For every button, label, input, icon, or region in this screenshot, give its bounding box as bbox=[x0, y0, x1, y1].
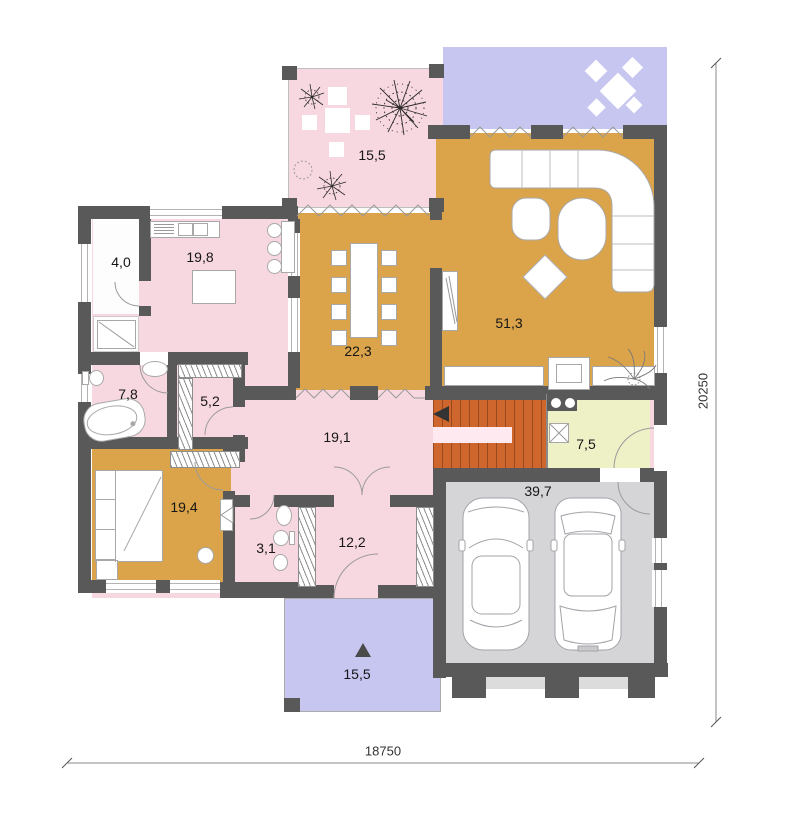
room-terrace-bottom bbox=[284, 598, 441, 712]
wall bbox=[390, 495, 436, 507]
room-label-garage: 39,7 bbox=[524, 483, 551, 499]
wall bbox=[350, 386, 378, 400]
wall bbox=[78, 580, 106, 593]
window bbox=[652, 570, 668, 607]
room-label-wc: 3,1 bbox=[256, 540, 275, 556]
wall bbox=[433, 478, 446, 678]
room-label-dining: 22,3 bbox=[344, 343, 371, 359]
toilet-tank bbox=[289, 531, 295, 545]
wall-post bbox=[282, 198, 297, 212]
wall bbox=[430, 200, 442, 220]
dining-chair bbox=[381, 277, 397, 293]
interior-window bbox=[288, 298, 300, 352]
stairs-landing bbox=[433, 427, 512, 443]
toilet-bowl bbox=[89, 370, 104, 386]
bar-stool bbox=[267, 223, 282, 238]
stool bbox=[197, 547, 214, 564]
washer-knob bbox=[565, 398, 575, 408]
room-label-closet: 5,2 bbox=[200, 393, 219, 409]
nightstand bbox=[96, 560, 118, 580]
wall bbox=[433, 663, 668, 677]
room-label-terrace: 15,5 bbox=[343, 666, 370, 682]
skylight-square bbox=[302, 115, 317, 130]
wall bbox=[531, 125, 563, 139]
room-label-kitchen: 19,8 bbox=[186, 249, 213, 265]
room-label-utility: 7,5 bbox=[576, 436, 595, 452]
wall bbox=[240, 386, 296, 400]
wall bbox=[156, 580, 170, 593]
closet-shelves bbox=[178, 378, 193, 450]
room-garage bbox=[445, 480, 655, 665]
window bbox=[652, 538, 668, 563]
skylight-square bbox=[325, 108, 350, 133]
wardrobe bbox=[170, 451, 240, 468]
wall bbox=[167, 365, 177, 438]
sideboard bbox=[444, 366, 544, 386]
room-label-living: 51,3 bbox=[495, 315, 522, 331]
wall bbox=[288, 276, 300, 298]
dining-chair bbox=[381, 304, 397, 320]
wall bbox=[433, 468, 600, 482]
closet-shelves bbox=[178, 364, 242, 378]
garage-pillar bbox=[628, 677, 655, 698]
shower-tray bbox=[97, 320, 136, 349]
wall bbox=[78, 437, 248, 449]
room-label-room: 12,2 bbox=[338, 534, 365, 550]
dining-chair bbox=[331, 304, 347, 320]
bidet bbox=[273, 554, 288, 571]
room-label-bedroom: 19,4 bbox=[170, 499, 197, 515]
window bbox=[654, 327, 667, 373]
wall bbox=[430, 268, 442, 388]
dining-chair bbox=[381, 330, 397, 346]
room-label-winter-garden: 15,5 bbox=[358, 147, 385, 163]
skylight-square bbox=[329, 142, 344, 157]
wall bbox=[288, 352, 300, 388]
wall bbox=[428, 125, 470, 139]
wall bbox=[654, 125, 667, 327]
door-opening bbox=[600, 468, 640, 482]
bar-stool bbox=[267, 241, 282, 256]
kitchen-island bbox=[192, 270, 236, 304]
wall bbox=[78, 402, 91, 593]
dimension-right: 20250 bbox=[696, 373, 711, 409]
dining-chair bbox=[331, 250, 347, 266]
bathroom-sink bbox=[142, 361, 168, 377]
room-label-bathroom: 7,8 bbox=[118, 386, 137, 402]
water-heater bbox=[549, 423, 569, 443]
wall bbox=[220, 585, 334, 598]
kitchen-bar bbox=[281, 221, 295, 273]
wardrobe bbox=[298, 507, 316, 587]
kitchen-sink bbox=[193, 223, 208, 236]
wall bbox=[298, 495, 334, 507]
wall bbox=[78, 352, 140, 365]
washer-knob bbox=[551, 398, 561, 408]
wall bbox=[425, 386, 655, 400]
wardrobe bbox=[416, 507, 434, 587]
window bbox=[170, 580, 220, 593]
dining-chair bbox=[381, 250, 397, 266]
garage-pillar bbox=[452, 677, 486, 698]
entrance-door-opening bbox=[654, 425, 667, 471]
window bbox=[106, 580, 156, 593]
wall bbox=[654, 373, 667, 425]
dining-chair bbox=[331, 277, 347, 293]
wall bbox=[640, 468, 655, 482]
skylight-square bbox=[355, 115, 370, 130]
wall bbox=[233, 495, 250, 507]
wall bbox=[78, 206, 91, 244]
wall bbox=[233, 352, 245, 407]
bed-pillows bbox=[95, 470, 116, 562]
skylight-square bbox=[328, 87, 347, 105]
wall-post bbox=[282, 66, 297, 80]
dimension-bottom: 18750 bbox=[365, 744, 401, 759]
wall bbox=[623, 125, 667, 139]
kitchen-sink bbox=[178, 223, 193, 236]
wall-post bbox=[429, 64, 444, 78]
tv-cabinet bbox=[442, 271, 458, 331]
room-winter-garden bbox=[288, 68, 446, 208]
garage-pillar bbox=[545, 677, 579, 698]
room-label-pantry: 4,0 bbox=[111, 254, 130, 270]
window bbox=[150, 206, 222, 219]
fireplace-inset bbox=[556, 364, 582, 383]
wall-post bbox=[284, 698, 300, 712]
dining-table bbox=[350, 243, 378, 338]
toilet-tank bbox=[82, 371, 89, 385]
sideboard bbox=[592, 366, 655, 386]
kitchen-hob bbox=[154, 224, 174, 235]
wc-sink bbox=[276, 505, 292, 526]
window bbox=[78, 244, 91, 302]
room-label-hall: 19,1 bbox=[323, 429, 350, 445]
wall bbox=[654, 471, 667, 482]
floor-plan: 15,5 19,8 4,0 22,3 51,3 7,8 5,2 19,1 7,5… bbox=[0, 0, 800, 831]
bar-stool bbox=[267, 259, 282, 274]
wall-unit bbox=[220, 499, 233, 531]
wall bbox=[139, 306, 151, 316]
